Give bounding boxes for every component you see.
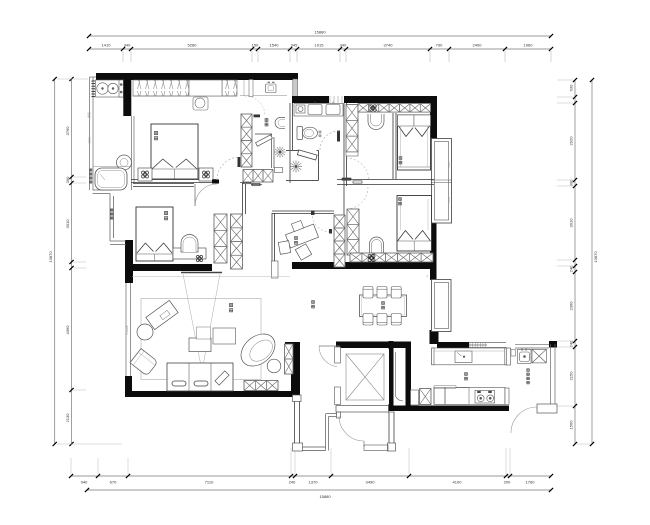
svg-text:790: 790 [436, 42, 443, 47]
svg-text:3740: 3740 [384, 42, 394, 47]
svg-text:340: 340 [340, 42, 347, 47]
svg-text:1915: 1915 [315, 42, 325, 47]
svg-text:300: 300 [65, 176, 70, 183]
svg-text:C1226: C1226 [125, 325, 129, 334]
svg-text:1760: 1760 [526, 480, 536, 485]
svg-text:3010: 3010 [569, 218, 574, 228]
svg-text:1960: 1960 [524, 42, 534, 47]
svg-text:4360: 4360 [65, 325, 70, 335]
svg-text:240: 240 [289, 480, 296, 485]
svg-text:3010: 3010 [65, 219, 70, 229]
svg-text:C0924: C0924 [89, 136, 92, 144]
svg-text:1560: 1560 [569, 420, 574, 430]
svg-text:150: 150 [252, 42, 259, 47]
svg-text:1540: 1540 [270, 42, 280, 47]
svg-text:2150: 2150 [569, 371, 574, 381]
svg-text:3760: 3760 [65, 126, 70, 136]
svg-text:15880: 15880 [319, 494, 331, 499]
svg-text:630: 630 [569, 84, 574, 91]
svg-text:1410: 1410 [102, 42, 112, 47]
svg-text:淋浴: 淋浴 [87, 112, 91, 118]
svg-text:C0815: C0815 [449, 196, 451, 203]
svg-text:2400: 2400 [473, 42, 483, 47]
svg-text:3490: 3490 [366, 480, 376, 485]
svg-text:13870: 13870 [48, 251, 53, 263]
svg-text:13870: 13870 [593, 251, 598, 263]
svg-text:1370: 1370 [309, 480, 319, 485]
svg-text:2130: 2130 [65, 413, 70, 423]
svg-text:15880: 15880 [314, 30, 326, 35]
svg-text:670: 670 [110, 480, 117, 485]
svg-text:2360: 2360 [569, 301, 574, 311]
svg-text:C0815: C0815 [449, 161, 451, 168]
svg-text:340: 340 [124, 42, 131, 47]
svg-text:5280: 5280 [188, 42, 198, 47]
svg-text:940: 940 [81, 480, 88, 485]
svg-text:2920: 2920 [569, 136, 574, 146]
svg-text:7110: 7110 [205, 480, 214, 485]
svg-text:4100: 4100 [453, 480, 463, 485]
svg-text:345: 345 [291, 42, 298, 47]
svg-text:200: 200 [504, 480, 511, 485]
